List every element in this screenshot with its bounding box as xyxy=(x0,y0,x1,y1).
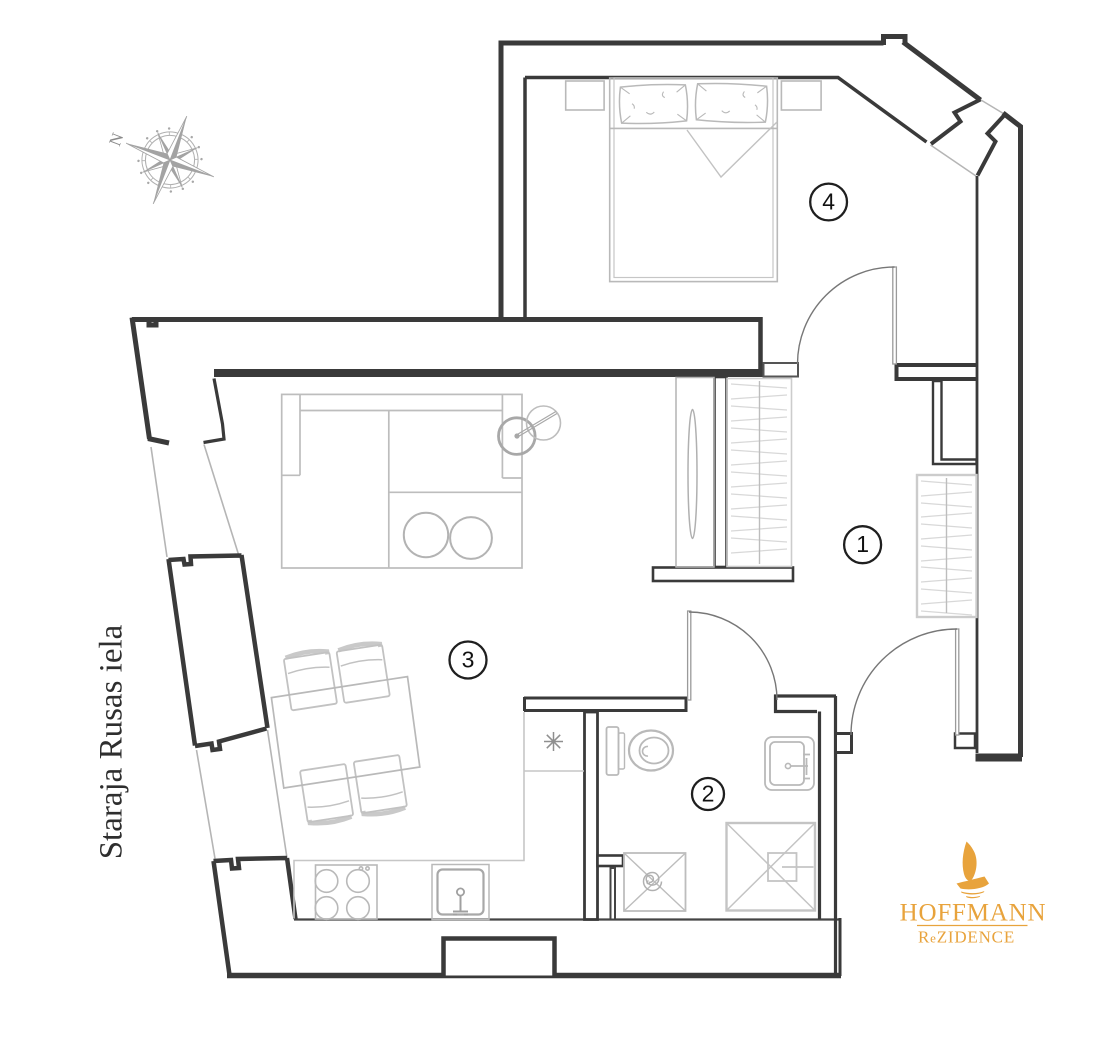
svg-text:1: 1 xyxy=(856,531,869,557)
svg-text:ReZIDENCE: ReZIDENCE xyxy=(918,928,1015,947)
svg-text:Staraja Rusas iela: Staraja Rusas iela xyxy=(94,624,130,859)
svg-text:HOFFMANN: HOFFMANN xyxy=(900,899,1047,926)
svg-text:2: 2 xyxy=(702,781,715,807)
svg-text:3: 3 xyxy=(462,647,475,673)
svg-text:4: 4 xyxy=(822,189,835,215)
